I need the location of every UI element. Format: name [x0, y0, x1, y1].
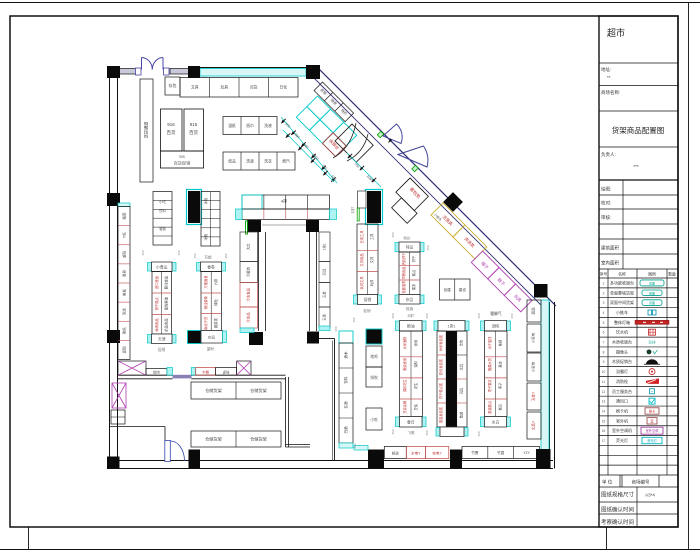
- svg-text:日化: 日化: [279, 85, 287, 90]
- svg-text:室: 室: [650, 418, 653, 423]
- svg-text:名酒: 名酒: [343, 401, 348, 409]
- svg-text:冷藏肉: 冷藏肉: [246, 266, 251, 277]
- svg-text:果冻: 果冻: [498, 360, 503, 367]
- svg-text:单面: 单面: [649, 290, 655, 295]
- svg-text:17: 17: [602, 439, 606, 443]
- svg-text:12: 12: [602, 390, 606, 394]
- svg-text:枣子果冻: 枣子果冻: [487, 379, 492, 393]
- svg-text:竹园: 竹园: [497, 450, 505, 455]
- svg-text:350: 350: [224, 253, 228, 258]
- svg-text:卤味: 卤味: [223, 370, 230, 375]
- svg-text:货架商品配置图: 货架商品配置图: [612, 125, 665, 135]
- svg-text:进口食品: 进口食品: [154, 275, 159, 289]
- svg-text:350: 350: [334, 326, 338, 331]
- svg-text:350: 350: [141, 250, 145, 255]
- svg-text:酱菜类: 酱菜类: [213, 318, 218, 329]
- svg-text:小家电: 小家电: [531, 361, 536, 372]
- svg-text:通风口: 通风口: [616, 398, 628, 404]
- svg-text:小食品: 小食品: [156, 264, 168, 269]
- svg-text:文具Y: 文具Y: [531, 420, 536, 430]
- svg-text:饮料: 饮料: [343, 376, 348, 384]
- svg-text:双面: 双面: [649, 281, 655, 285]
- svg-text:商场编号: 商场编号: [632, 479, 650, 486]
- svg-text:六排: 六排: [213, 278, 218, 285]
- svg-text:建设: 建设: [459, 287, 467, 292]
- svg-text:存包: 存包: [169, 82, 177, 88]
- svg-text:1排1: 1排1: [447, 323, 455, 328]
- svg-text:休闲食品类: 休闲食品类: [438, 334, 443, 351]
- svg-text:荧光灯: 荧光灯: [647, 438, 657, 443]
- svg-text:促销: 促销: [121, 346, 126, 354]
- svg-text:冰柜: 冰柜: [203, 197, 208, 204]
- svg-text:洗液: 洗液: [264, 123, 272, 128]
- svg-text:排吹: 排吹: [370, 375, 378, 380]
- svg-text:1排1: 1排1: [322, 243, 327, 250]
- svg-text:飞歌: 飞歌: [407, 430, 415, 435]
- svg-text:天津: 天津: [158, 336, 166, 341]
- svg-text:小家电: 小家电: [531, 332, 536, 343]
- svg-text:单 位: 单 位: [602, 479, 613, 486]
- svg-text:糖果炒货: 糖果炒货: [487, 358, 492, 371]
- svg-text:饼干糕点: 饼干糕点: [154, 297, 159, 311]
- svg-text:2: 2: [603, 291, 605, 295]
- svg-text:日用工具: 日用工具: [359, 230, 364, 244]
- svg-text:水电Y: 水电Y: [411, 451, 421, 456]
- svg-text:香皂: 香皂: [121, 269, 126, 277]
- svg-text:***: ***: [633, 164, 639, 169]
- svg-text:百货促销: 百货促销: [174, 160, 191, 167]
- svg-text:文具: 文具: [458, 363, 463, 370]
- svg-text:3排T: 3排T: [407, 313, 414, 318]
- svg-text:洗衣: 洗衣: [264, 158, 272, 163]
- svg-text:洗液: 洗液: [246, 158, 254, 163]
- svg-text:室外机: 室外机: [616, 417, 628, 423]
- svg-text:室外空调: 室外空调: [646, 428, 659, 433]
- svg-text:商场名称:: 商场名称:: [601, 89, 620, 96]
- svg-text:350: 350: [193, 253, 197, 258]
- svg-text:冷冻品: 冷冻品: [246, 312, 251, 323]
- svg-text:用纸: 用纸: [121, 327, 126, 335]
- svg-text:名称: 名称: [618, 272, 626, 277]
- svg-text:6: 6: [603, 331, 605, 335]
- svg-text:小推车: 小推车: [616, 309, 628, 315]
- svg-text:春日: 春日: [407, 419, 415, 424]
- svg-text:9: 9: [603, 360, 605, 364]
- svg-text:膨化食品: 膨化食品: [164, 275, 169, 289]
- svg-text:905: 905: [179, 155, 185, 159]
- svg-text:燃汽: 燃汽: [282, 158, 290, 163]
- svg-text:室外空调机: 室外空调机: [612, 427, 632, 433]
- svg-text:杂品: 杂品: [406, 297, 414, 302]
- svg-text:文具: 文具: [191, 85, 199, 90]
- svg-text:玩具文具: 玩具文具: [359, 276, 364, 290]
- svg-text:单面靠墙货架: 单面靠墙货架: [610, 289, 634, 295]
- svg-text:8: 8: [603, 350, 605, 354]
- svg-text:春卷: 春卷: [207, 264, 215, 269]
- svg-text:百货: 百货: [250, 85, 258, 90]
- svg-text:2排T: 2排T: [350, 207, 355, 214]
- svg-text:YZY: YZY: [523, 451, 530, 455]
- svg-text:洗涤: 洗涤: [121, 308, 126, 316]
- svg-text:校对:: 校对:: [601, 200, 611, 207]
- svg-text:糕点: 糕点: [498, 403, 503, 410]
- svg-text:粮油: 粮油: [407, 323, 415, 328]
- svg-text:促销: 促销: [406, 306, 414, 311]
- svg-text:350: 350: [391, 232, 395, 237]
- svg-text:饼干: 饼干: [411, 255, 416, 262]
- svg-text:木质收银台: 木质收银台: [612, 339, 632, 345]
- svg-text:大米面粉: 大米面粉: [402, 336, 407, 350]
- svg-text:仓储货架: 仓储货架: [250, 435, 267, 442]
- svg-text:刷卡: 刷卡: [649, 408, 656, 413]
- svg-text:瓜子蜜饯: 瓜子蜜饯: [487, 336, 492, 350]
- svg-text:粮油食用: 粮油食用: [402, 358, 407, 371]
- svg-text:考察确认时间: 考察确认时间: [601, 518, 634, 526]
- svg-text:调味: 调味: [492, 323, 500, 328]
- svg-text:京都: 京都: [204, 255, 212, 260]
- svg-text:鲜肉: 鲜肉: [153, 370, 160, 375]
- svg-text:916: 916: [167, 122, 175, 127]
- svg-text:绿色: 绿色: [213, 299, 218, 306]
- svg-text:雪糕: 雪糕: [159, 226, 166, 231]
- svg-text:糕点: 糕点: [411, 269, 416, 276]
- svg-text:员工服务台: 员工服务台: [612, 388, 632, 394]
- svg-text:邮政: 邮政: [392, 451, 400, 456]
- svg-text:350: 350: [425, 430, 429, 435]
- svg-text:350: 350: [477, 431, 481, 436]
- svg-text:百货: 百货: [189, 129, 198, 136]
- svg-text:花生: 花生: [413, 382, 418, 389]
- svg-text:送货通道: 送货通道: [143, 121, 150, 139]
- svg-text:13: 13: [602, 400, 606, 404]
- svg-text:创建: 创建: [444, 287, 452, 292]
- svg-text:室内面积: 室内面积: [601, 260, 619, 267]
- svg-text:纸巾: 纸巾: [246, 123, 254, 128]
- svg-text:五金Y: 五金Y: [531, 391, 536, 401]
- svg-text:饮吹: 饮吹: [458, 339, 463, 346]
- svg-text:五香: 五香: [322, 314, 327, 321]
- svg-text:饮料: 饮料: [159, 208, 166, 213]
- svg-text:摄像头: 摄像头: [616, 348, 628, 354]
- svg-text:杂品: 杂品: [208, 335, 216, 340]
- svg-text:350: 350: [477, 313, 481, 318]
- svg-text:5: 5: [603, 321, 605, 325]
- svg-text:10: 10: [602, 370, 606, 374]
- svg-text:白酒: 白酒: [343, 426, 348, 434]
- svg-text:超市: 超市: [607, 27, 625, 38]
- svg-text:农电Y: 农电Y: [432, 451, 442, 456]
- svg-text:促销: 促销: [158, 347, 166, 352]
- svg-text:调和花生: 调和花生: [402, 379, 407, 393]
- svg-text:3: 3: [603, 301, 605, 305]
- svg-text:竹曹: 竹曹: [471, 450, 478, 455]
- svg-text:水白: 水白: [492, 419, 500, 424]
- svg-text:审核:: 审核:: [601, 214, 611, 221]
- svg-text:促销: 促销: [363, 308, 371, 313]
- svg-text:4排: 4排: [281, 199, 287, 204]
- svg-text:350: 350: [510, 313, 514, 318]
- svg-text:图纸确认时间: 图纸确认时间: [601, 506, 634, 514]
- svg-text:1: 1: [603, 281, 605, 285]
- svg-text:915: 915: [190, 122, 198, 127]
- svg-text:散装食品类: 散装食品类: [438, 406, 443, 423]
- svg-text:序号: 序号: [600, 272, 608, 277]
- svg-text:休闲食品: 休闲食品: [154, 318, 159, 332]
- svg-text:14: 14: [602, 409, 606, 413]
- svg-text:仓储货架: 仓储货架: [205, 435, 222, 442]
- svg-text:调和: 调和: [413, 361, 418, 367]
- svg-text:双面中间货架: 双面中间货架: [610, 299, 634, 305]
- svg-text:枣子: 枣子: [498, 382, 503, 389]
- svg-text:方便面食: 方便面食: [203, 275, 208, 289]
- svg-text:双排: 双排: [648, 340, 656, 345]
- svg-text:荧光灯: 荧光灯: [616, 437, 628, 443]
- svg-text:冷冻食品: 冷冻食品: [246, 287, 251, 301]
- svg-text:桂圆蜜枣: 桂圆蜜枣: [401, 280, 406, 294]
- svg-text:4: 4: [603, 311, 605, 315]
- svg-text:地鸡: 地鸡: [370, 354, 378, 359]
- svg-text:茶叶: 茶叶: [207, 347, 215, 352]
- svg-text:T纸: T纸: [121, 232, 126, 238]
- svg-text:数量: 数量: [668, 272, 676, 277]
- svg-text:玩具: 玩具: [369, 279, 374, 286]
- svg-text:350: 350: [352, 317, 356, 322]
- svg-text:大灶: 大灶: [246, 243, 251, 250]
- svg-text:特价: 特价: [403, 236, 411, 241]
- svg-text:早餐食品: 早餐食品: [401, 267, 406, 280]
- svg-text:15: 15: [602, 419, 606, 423]
- svg-text:7: 7: [603, 341, 605, 345]
- svg-text:A3*4: A3*4: [645, 493, 655, 498]
- svg-text:百货: 百货: [167, 129, 176, 136]
- svg-text:膨化食品类: 膨化食品类: [438, 358, 443, 375]
- svg-text:钙奶饼干: 钙奶饼干: [401, 252, 406, 266]
- svg-text:文具: 文具: [369, 256, 374, 263]
- svg-text:玩具: 玩具: [458, 387, 463, 394]
- svg-text:促销: 促销: [364, 297, 372, 302]
- svg-text:南北干货: 南北干货: [203, 316, 208, 330]
- svg-text:蜜饯果脯: 蜜饯果脯: [164, 297, 169, 311]
- svg-text:350: 350: [426, 245, 430, 250]
- svg-text:工具: 工具: [369, 233, 374, 240]
- svg-text:冰柜: 冰柜: [203, 233, 208, 240]
- svg-text:多功能收银台: 多功能收银台: [610, 279, 634, 285]
- svg-text:味精: 味精: [498, 339, 503, 346]
- svg-text:酒水: 酒水: [343, 351, 348, 359]
- svg-text:350: 350: [425, 313, 429, 318]
- svg-text:貔貅气: 貔貅气: [490, 311, 502, 316]
- svg-text:食用: 食用: [413, 340, 418, 346]
- svg-text:午餐: 午餐: [202, 370, 209, 375]
- svg-text:豆油: 豆油: [413, 404, 418, 410]
- svg-text:图纸规格尺寸: 图纸规格尺寸: [601, 491, 635, 499]
- svg-text:**: **: [607, 75, 611, 80]
- svg-text:仓储货架: 仓储货架: [250, 387, 267, 394]
- svg-text:350: 350: [391, 313, 395, 318]
- svg-text:建筑面积: 建筑面积: [601, 245, 619, 252]
- svg-text:16: 16: [602, 429, 606, 433]
- svg-text:11: 11: [602, 380, 606, 384]
- svg-text:豆油杂粮: 豆油杂粮: [402, 400, 407, 414]
- svg-text:美发: 美发: [121, 289, 126, 297]
- svg-text:散装糕点: 散装糕点: [487, 400, 492, 414]
- svg-text:绘图:: 绘图:: [601, 186, 611, 193]
- svg-text:文具用品: 文具用品: [359, 253, 364, 267]
- svg-text:刷卡机: 刷卡机: [616, 407, 628, 413]
- svg-text:散装: 散装: [458, 411, 463, 418]
- svg-text:小吃: 小吃: [370, 417, 378, 422]
- svg-text:玩具: 玩具: [322, 268, 327, 275]
- svg-text:木质促销台: 木质促销台: [612, 358, 632, 364]
- svg-text:特品: 特品: [406, 245, 414, 250]
- svg-text:整体灯箱: 整体灯箱: [614, 319, 630, 325]
- svg-text:饮水机: 饮水机: [616, 329, 628, 335]
- svg-text:350: 350: [391, 429, 395, 434]
- svg-text:纸品: 纸品: [228, 158, 236, 163]
- svg-text:粮油调味: 粮油调味: [203, 295, 208, 309]
- svg-text:350: 350: [177, 250, 181, 255]
- svg-text:地址:: 地址:: [601, 66, 611, 72]
- svg-text:玩具: 玩具: [220, 85, 228, 90]
- svg-text:小吃: 小吃: [159, 199, 166, 204]
- svg-text:果冻: 果冻: [411, 283, 416, 290]
- svg-text:350: 350: [353, 443, 357, 448]
- svg-text:五金: 五金: [322, 291, 327, 298]
- svg-text:饼干糕点类: 饼干糕点类: [438, 382, 443, 399]
- svg-text:酱菜: 酱菜: [121, 212, 126, 220]
- svg-text:消防栓: 消防栓: [616, 378, 628, 384]
- svg-text:双面: 双面: [649, 301, 655, 305]
- svg-text:仓储货架: 仓储货架: [205, 387, 222, 394]
- svg-text:湿纸: 湿纸: [228, 123, 236, 128]
- svg-text:浴霸灯: 浴霸灯: [616, 368, 628, 374]
- svg-text:烟酒: 烟酒: [531, 307, 536, 315]
- svg-text:负责人:: 负责人:: [601, 151, 616, 158]
- svg-text:图例: 图例: [648, 272, 656, 277]
- svg-text:奶品食品: 奶品食品: [164, 318, 169, 332]
- svg-text:重阳: 重阳: [121, 250, 126, 258]
